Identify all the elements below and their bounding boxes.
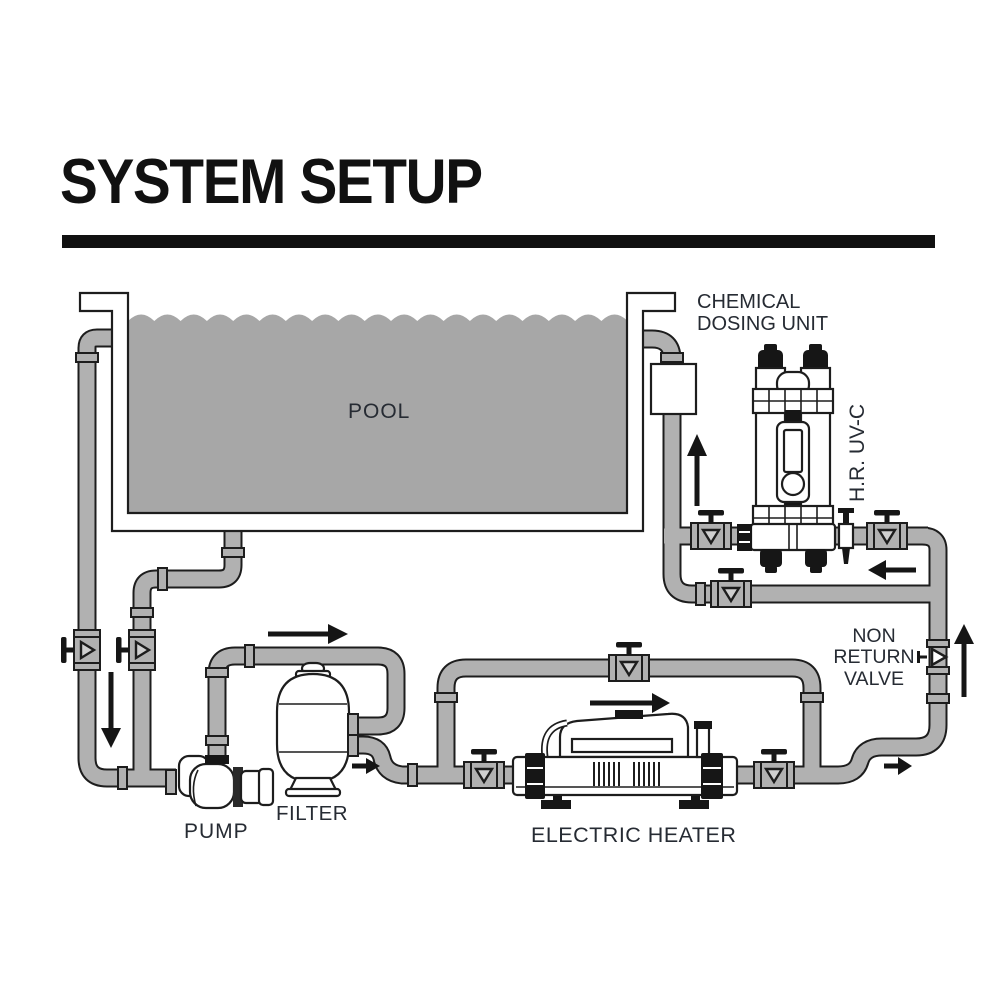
heater-flange-right [701, 753, 723, 799]
hr-uvc-label: H.R. UV-C [846, 382, 869, 502]
valve-uv-bypass [711, 568, 751, 607]
pool-label: POOL [348, 400, 410, 423]
valve-skimmer-line [61, 630, 100, 670]
chemical-dosing-unit-label: CHEMICAL DOSING UNIT [697, 291, 828, 335]
uv-inlet-flange [737, 524, 752, 551]
valve-heater-bypass [609, 642, 649, 681]
valve-uv-left [691, 510, 731, 549]
pump [166, 755, 273, 808]
non-return-valve-label: NON RETURN VALVE [828, 626, 920, 690]
chemical-dosing-unit-box [651, 364, 696, 414]
system-setup-diagram: SYSTEM SETUP [0, 0, 1000, 1000]
injection-fitting [838, 508, 854, 564]
filter-label: FILTER [276, 803, 348, 826]
pump-label: PUMP [184, 820, 249, 843]
arrow-uv-return-left [868, 560, 916, 580]
arrow-pool-outlet-down [101, 672, 121, 748]
valve-heater-outlet [754, 749, 794, 788]
valve-drain-line [116, 630, 155, 670]
arrow-return-to-pool-up [687, 434, 707, 506]
arrow-riser-up [954, 624, 974, 697]
electric-heater-label: ELECTRIC HEATER [531, 824, 736, 848]
hr-uv-c-unit [737, 344, 835, 573]
non-return-valve [917, 640, 949, 674]
arrow-pump-to-filter-right [268, 624, 348, 644]
electric-heater [513, 710, 737, 809]
heater-flange-left [525, 753, 545, 799]
arrow-heater-outlet-right [884, 757, 912, 775]
valve-uv-right [867, 510, 907, 549]
valve-heater-inlet [464, 749, 504, 788]
filter [277, 663, 358, 796]
